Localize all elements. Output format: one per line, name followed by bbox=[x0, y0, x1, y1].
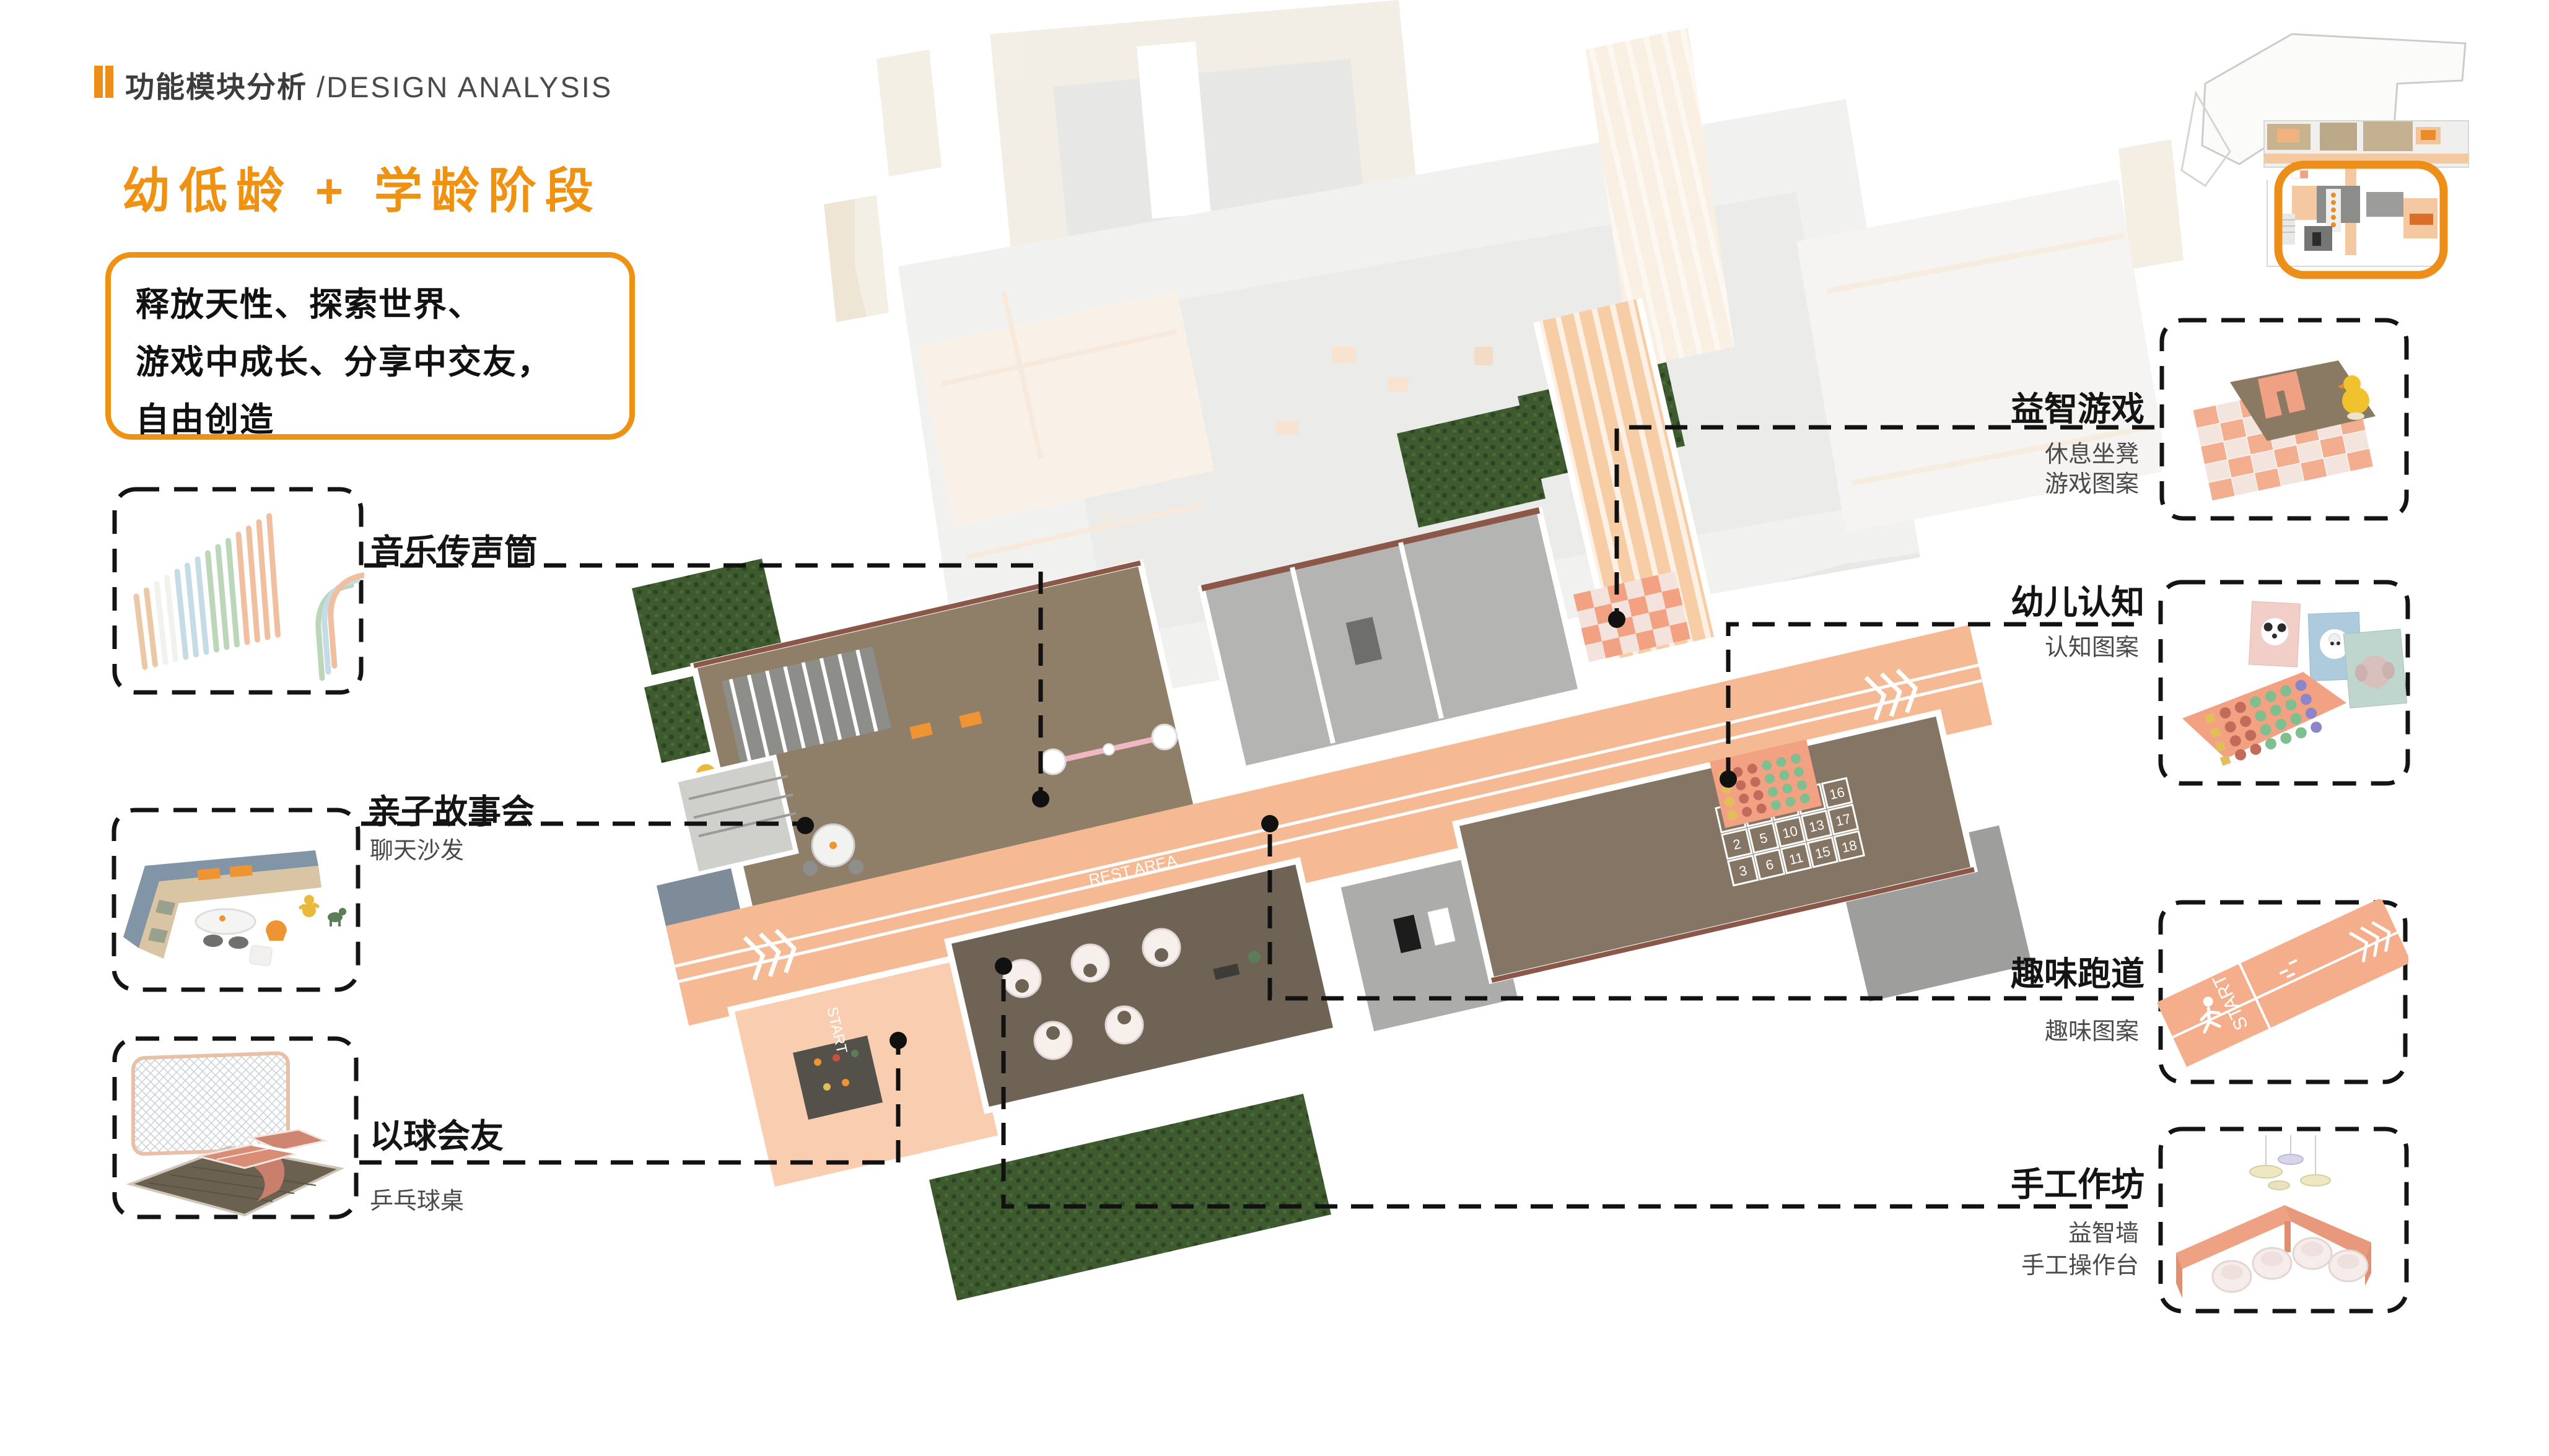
feature-label-puzzle: 益智游戏 bbox=[2011, 381, 2145, 430]
leader-dot bbox=[1608, 611, 1625, 628]
leader-dot bbox=[890, 1032, 907, 1049]
leader-dot bbox=[995, 957, 1012, 975]
feature-sub-workshop-2: 手工操作台 bbox=[2021, 1246, 2139, 1280]
leader-dot bbox=[797, 817, 814, 834]
feature-sub-track-1: 趣味图案 bbox=[2045, 1012, 2139, 1046]
feature-box-puzzle bbox=[2159, 317, 2410, 521]
feature-label-workshop: 手工作坊 bbox=[2011, 1157, 2145, 1206]
leader-workshop bbox=[1003, 966, 2128, 1206]
feature-box-music bbox=[111, 486, 364, 695]
feature-label-track: 趣味跑道 bbox=[2011, 946, 2145, 995]
feature-label-music: 音乐传声筒 bbox=[370, 524, 538, 573]
feature-sub-workshop-1: 益智墙 bbox=[2068, 1214, 2139, 1248]
feature-sub-story: 聊天沙发 bbox=[370, 831, 464, 865]
feature-box-track: START bbox=[2158, 899, 2408, 1085]
design-analysis-slide: LET'S DO WEST AREA bbox=[0, 0, 2549, 1456]
feature-box-workshop bbox=[2158, 1126, 2410, 1314]
leader-dot bbox=[1261, 815, 1279, 832]
feature-sub-puzzle-1: 休息坐凳 bbox=[2045, 435, 2139, 469]
feature-box-cognition bbox=[2158, 579, 2411, 787]
leader-track bbox=[1270, 824, 2134, 998]
leader-music bbox=[364, 565, 1041, 799]
feature-label-story: 亲子故事会 bbox=[367, 784, 535, 833]
feature-sub-cognition-1: 认知图案 bbox=[2045, 628, 2139, 662]
feature-box-pingpong bbox=[111, 1035, 359, 1220]
leader-dot bbox=[1032, 790, 1049, 808]
feature-label-cognition: 幼儿认知 bbox=[2011, 575, 2145, 624]
feature-sub-pingpong: 乒乓球桌 bbox=[370, 1182, 464, 1216]
feature-box-story bbox=[111, 807, 361, 993]
feature-sub-puzzle-2: 游戏图案 bbox=[2045, 464, 2139, 499]
leader-dot bbox=[1720, 770, 1737, 788]
feature-label-pingpong: 以球会友 bbox=[370, 1109, 504, 1157]
